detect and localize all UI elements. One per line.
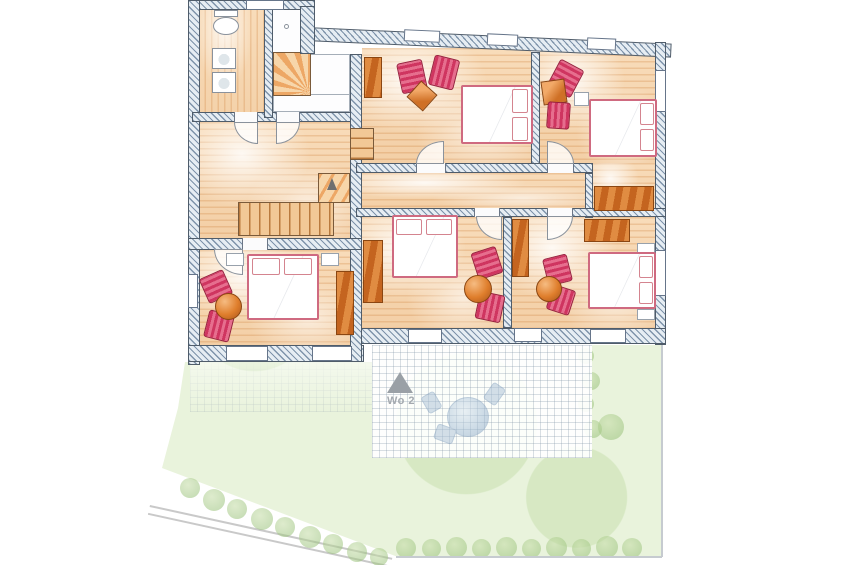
window: [590, 329, 626, 343]
wardrobe: [512, 219, 529, 277]
pillow: [512, 89, 528, 113]
bush: [598, 414, 624, 440]
bush: [275, 517, 295, 537]
wardrobe: [594, 186, 654, 211]
round-table: [464, 275, 492, 303]
wardrobe: [363, 240, 383, 303]
bush: [203, 489, 225, 511]
wall: [188, 0, 200, 365]
wardrobe: [364, 57, 382, 98]
shower-drain: [284, 24, 289, 29]
round-table: [215, 293, 242, 320]
main-staircase: [238, 202, 334, 236]
garden-boundary-line: [661, 345, 663, 557]
pillow: [252, 258, 280, 275]
pillow: [639, 256, 653, 278]
pillow: [639, 282, 653, 304]
bush: [347, 542, 367, 562]
pillow: [512, 117, 528, 141]
round-table: [536, 276, 562, 302]
bush: [323, 534, 343, 554]
window: [226, 346, 268, 361]
tiled-apron: [190, 362, 372, 412]
pillow: [426, 219, 452, 235]
shower-floor: [271, 8, 301, 54]
window: [408, 329, 442, 343]
connecting-steps: [350, 128, 374, 160]
toilet-tank: [214, 10, 238, 17]
wardrobe: [336, 271, 354, 335]
window: [487, 33, 519, 46]
pillow: [396, 219, 422, 235]
door-opening: [242, 238, 268, 250]
window: [312, 346, 352, 361]
nightstand: [637, 309, 655, 320]
wall: [503, 217, 512, 328]
window: [587, 37, 617, 50]
bush: [370, 548, 388, 565]
bush: [396, 538, 416, 558]
window: [655, 250, 666, 296]
stair-direction-arrow-icon: [327, 178, 337, 190]
wardrobe: [584, 219, 630, 242]
bush: [446, 537, 467, 558]
window: [404, 29, 441, 43]
wall: [264, 6, 273, 118]
window: [188, 274, 198, 308]
pillow: [640, 129, 654, 151]
washbasin: [212, 48, 236, 69]
toilet: [213, 17, 239, 35]
door-opening: [547, 163, 574, 173]
landing-floor: [273, 94, 350, 112]
bush: [496, 537, 517, 558]
wall: [300, 6, 315, 54]
window: [246, 0, 284, 10]
bush: [251, 508, 273, 530]
winder-staircase: [273, 52, 311, 96]
bush: [227, 499, 247, 519]
nightstand: [226, 253, 244, 266]
washbasin: [212, 72, 236, 93]
nightstand: [574, 92, 589, 106]
corridor-floor: [362, 173, 585, 208]
bush: [596, 536, 618, 558]
triangle-up-icon: [387, 372, 413, 393]
bush: [180, 478, 200, 498]
pillow: [284, 258, 312, 275]
door-opening: [416, 163, 446, 173]
pillow: [640, 103, 654, 125]
bush: [622, 538, 642, 558]
door-opening: [276, 112, 300, 122]
door-opening: [234, 112, 258, 122]
window: [514, 328, 542, 342]
bush: [299, 526, 321, 548]
garden-boundary-line: [396, 556, 662, 558]
nightstand: [321, 253, 339, 266]
armchair: [546, 101, 571, 130]
bush: [546, 537, 567, 558]
terrace-marker-label: Wo 2: [375, 395, 427, 407]
floor-plan-canvas: Wo 2: [0, 0, 848, 565]
